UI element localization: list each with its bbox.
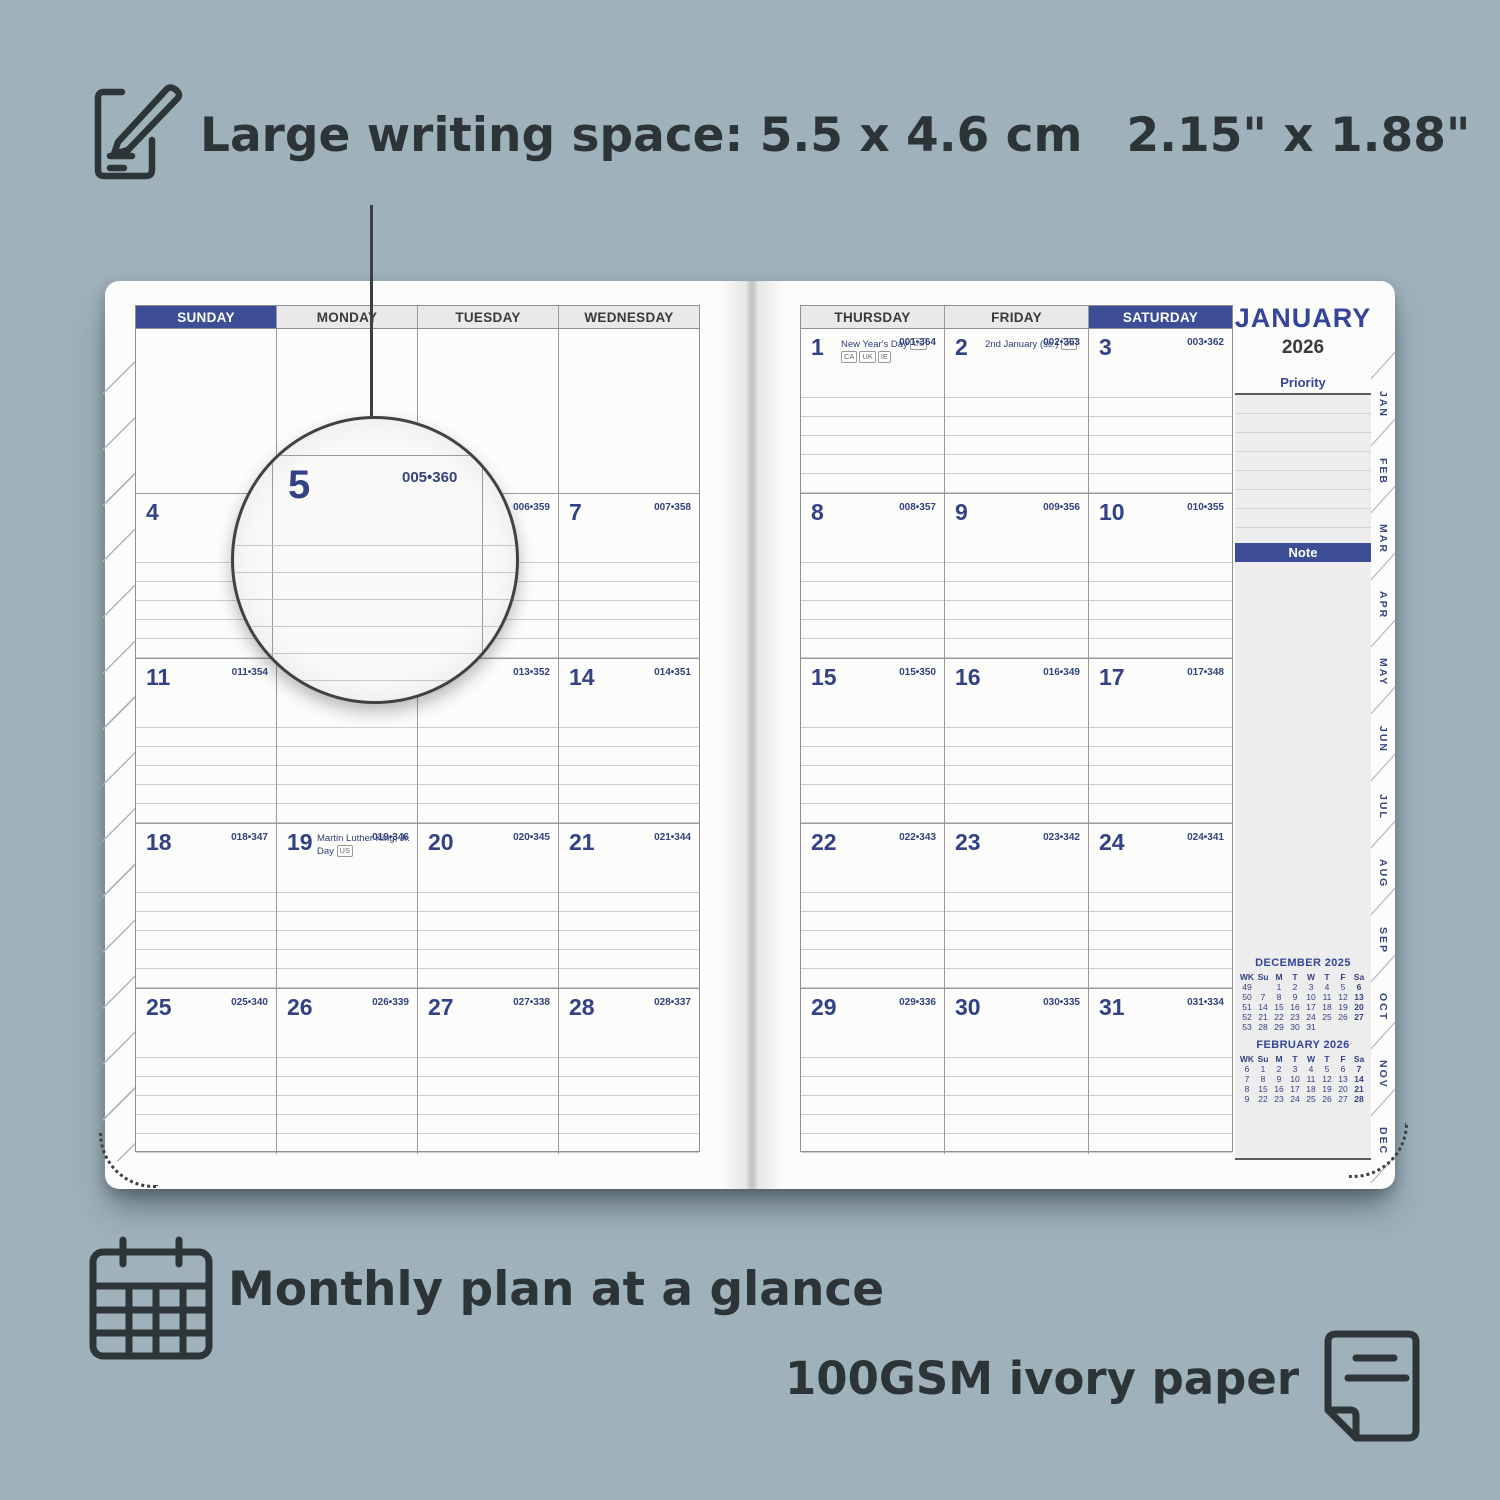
mini-calendar-title: DECEMBER 2025 [1239, 957, 1367, 969]
day-cell: 1New Year's Day USCAUKIE001•364 [801, 329, 945, 493]
mini-calendar-header-cell: WK [1239, 972, 1255, 982]
mini-calendar-cell: 13 [1351, 992, 1367, 1002]
day-code: 003•362 [1187, 337, 1224, 348]
month-tab-label: MAY [1377, 658, 1389, 686]
mini-calendar-cell: 7 [1255, 992, 1271, 1002]
day-number: 24 [1099, 829, 1125, 856]
mini-calendar-header-cell: M [1271, 1054, 1287, 1064]
mini-calendar-cell: 9 [1287, 992, 1303, 1002]
mini-calendar-cell: 17 [1303, 1002, 1319, 1012]
writing-space-metric: Large writing space: 5.5 x 4.6 cm [200, 108, 1082, 163]
mini-calendar-cell: 4 [1303, 1064, 1319, 1074]
mini-calendar-cell: 6 [1239, 1064, 1255, 1074]
mini-calendar-cell: 19 [1319, 1084, 1335, 1094]
mini-calendar-row: 815161718192021 [1239, 1084, 1367, 1094]
day-code: 016•349 [1043, 667, 1080, 678]
mini-calendar-cell: 26 [1319, 1094, 1335, 1104]
page-gutter-shadow [720, 281, 784, 1189]
paper-sheet-icon [1312, 1326, 1428, 1450]
mini-calendar-row: 5078910111213 [1239, 992, 1367, 1002]
calendar-grid-icon [85, 1234, 217, 1364]
dow-header: MONDAY [277, 306, 418, 328]
mini-calendar-cell: 3 [1303, 982, 1319, 992]
month-tab: JUN [1371, 706, 1395, 773]
mini-calendar-cell: 20 [1335, 1084, 1351, 1094]
mini-calendar-header-cell: F [1335, 1054, 1351, 1064]
priority-section-label: Priority [1233, 375, 1373, 390]
mini-calendar-cell: 18 [1319, 1002, 1335, 1012]
mini-calendar-cell [1335, 1022, 1351, 1032]
day-number: 19 [287, 829, 313, 856]
dow-header: WEDNESDAY [559, 306, 699, 328]
week-row: 15015•35016016•34917017•348 [801, 659, 1232, 824]
day-cell: 3003•362 [1089, 329, 1232, 493]
mini-calendar-cell: 7 [1239, 1074, 1255, 1084]
mini-calendar-cell: 2 [1287, 982, 1303, 992]
month-tab-label: JUN [1377, 726, 1389, 753]
day-number: 21 [569, 829, 595, 856]
day-code: 031•334 [1187, 997, 1224, 1008]
day-number: 4 [146, 499, 159, 526]
day-number: 17 [1099, 664, 1125, 691]
mini-calendar-cell: 11 [1303, 1074, 1319, 1084]
day-cell: 7007•358 [559, 494, 699, 658]
day-number: 3 [1099, 334, 1112, 361]
writing-space-callout: Large writing space: 5.5 x 4.6 cm2.15" x… [200, 108, 1470, 163]
note-section-label: Note [1235, 543, 1371, 562]
mini-calendar-cell: 53 [1239, 1022, 1255, 1032]
country-badge: US [337, 845, 353, 857]
day-code: 008•357 [899, 502, 936, 513]
day-number: 2 [955, 334, 968, 361]
day-code: 019•346 [372, 832, 409, 843]
mini-calendar-row: 5328293031 [1239, 1022, 1367, 1032]
day-code: 015•350 [899, 667, 936, 678]
week-row: 1New Year's Day USCAUKIE001•36422nd Janu… [801, 329, 1232, 494]
week-row: 22022•34323023•34224024•341 [801, 824, 1232, 989]
day-code: 010•355 [1187, 502, 1224, 513]
mini-calendar-cell: 8 [1239, 1084, 1255, 1094]
day-cell: 16016•349 [945, 659, 1089, 823]
mini-calendar-cell: 29 [1271, 1022, 1287, 1032]
day-code: 030•335 [1043, 997, 1080, 1008]
mini-calendar-header-cell: F [1335, 972, 1351, 982]
magnifier-circle: 5 005•360 [231, 416, 519, 704]
day-cell [136, 329, 277, 493]
paper-callout: 100GSM ivory paper [785, 1352, 1205, 1405]
month-tab-label: FEB [1377, 458, 1389, 485]
mini-calendar-cell: 12 [1319, 1074, 1335, 1084]
day-cell: 18018•347 [136, 824, 277, 988]
day-code: 026•339 [372, 997, 409, 1008]
mini-calendar-header-cell: M [1271, 972, 1287, 982]
mini-calendar-title: FEBRUARY 2026 [1239, 1039, 1367, 1051]
dow-header: TUESDAY [418, 306, 559, 328]
mini-calendar-cell: 18 [1303, 1084, 1319, 1094]
day-number: 10 [1099, 499, 1125, 526]
day-cell: 20020•345 [418, 824, 559, 988]
month-tab-label: NOV [1377, 1060, 1389, 1089]
mini-calendar-header-cell: T [1319, 972, 1335, 982]
mini-calendar-table: WKSuMTWTFSa61234567789101112131481516171… [1239, 1054, 1367, 1104]
mini-calendar-header-cell: Sa [1351, 1054, 1367, 1064]
mini-calendar-header-cell: WK [1239, 1054, 1255, 1064]
day-cell: 24024•341 [1089, 824, 1232, 988]
day-number: 26 [287, 994, 313, 1021]
day-number: 16 [955, 664, 981, 691]
priority-writing-area [1235, 393, 1371, 545]
day-cell: 30030•335 [945, 989, 1089, 1154]
mini-calendar-cell: 28 [1351, 1094, 1367, 1104]
day-cell: 21021•344 [559, 824, 699, 988]
day-code: 028•337 [654, 997, 691, 1008]
day-number: 7 [569, 499, 582, 526]
mini-calendar-header-row: WKSuMTWTFSa [1239, 1054, 1367, 1064]
right-page-calendar-grid: THURSDAYFRIDAYSATURDAY1New Year's Day US… [800, 305, 1233, 1152]
mini-calendar-row: 7891011121314 [1239, 1074, 1367, 1084]
mini-calendar-header-cell: W [1303, 1054, 1319, 1064]
day-cell: 15015•350 [801, 659, 945, 823]
day-cell: 8008•357 [801, 494, 945, 658]
mini-calendar-cell [1319, 1022, 1335, 1032]
mini-calendar-cell: 19 [1335, 1002, 1351, 1012]
monthly-plan-callout: Monthly plan at a glance [228, 1262, 884, 1317]
day-code: 013•352 [513, 667, 550, 678]
mini-calendar-header-cell: Su [1255, 972, 1271, 982]
day-code: 007•358 [654, 502, 691, 513]
day-cell: 29029•336 [801, 989, 945, 1154]
dow-header: SATURDAY [1089, 306, 1232, 328]
month-tab: NOV [1371, 1041, 1395, 1108]
mini-calendar-header-cell: W [1303, 972, 1319, 982]
mini-calendar: FEBRUARY 2026WKSuMTWTFSa6123456778910111… [1239, 1039, 1367, 1104]
corner-dotted-arc-right [1349, 1123, 1408, 1178]
day-number: 29 [811, 994, 837, 1021]
mini-calendar-cell: 24 [1303, 1012, 1319, 1022]
month-tab: AUG [1371, 840, 1395, 907]
mini-calendar-row: 922232425262728 [1239, 1094, 1367, 1104]
mini-calendar-cell: 15 [1271, 1002, 1287, 1012]
day-number: 23 [955, 829, 981, 856]
mini-calendar-cell: 6 [1335, 1064, 1351, 1074]
week-row: 18018•34719Martin Luther King, Jr. Day U… [136, 824, 699, 989]
day-number: 15 [811, 664, 837, 691]
month-tab: FEB [1371, 438, 1395, 505]
mini-calendar-cell: 26 [1335, 1012, 1351, 1022]
day-cell [559, 329, 699, 493]
day-number: 30 [955, 994, 981, 1021]
writing-space-imperial: 2.15" x 1.88" [1126, 108, 1470, 163]
day-number: 20 [428, 829, 454, 856]
magnified-ruled-lines [234, 519, 516, 701]
mini-calendar-cell: 14 [1351, 1074, 1367, 1084]
day-number: 9 [955, 499, 968, 526]
day-cell: 19Martin Luther King, Jr. Day US019•346 [277, 824, 418, 988]
planner-spread: SUNDAYMONDAYTUESDAYWEDNESDAY4006•3597007… [105, 281, 1395, 1189]
note-writing-area [1235, 562, 1371, 948]
day-code: 020•345 [513, 832, 550, 843]
day-of-week-header-row: SUNDAYMONDAYTUESDAYWEDNESDAY [136, 306, 699, 329]
country-badge: UK [859, 351, 875, 363]
day-cell: 17017•348 [1089, 659, 1232, 823]
day-code: 017•348 [1187, 667, 1224, 678]
mini-calendar-cell: 9 [1271, 1074, 1287, 1084]
day-cell: 27027•338 [418, 989, 559, 1154]
day-cell: 9009•356 [945, 494, 1089, 658]
mini-calendar-cell: 31 [1303, 1022, 1319, 1032]
product-image-canvas: Large writing space: 5.5 x 4.6 cm2.15" x… [0, 0, 1500, 1500]
mini-calendar-header-cell: Sa [1351, 972, 1367, 982]
mini-calendar-cell: 16 [1287, 1002, 1303, 1012]
month-tab-label: OCT [1377, 993, 1389, 1021]
day-code: 009•356 [1043, 502, 1080, 513]
day-number: 25 [146, 994, 172, 1021]
mini-calendar-cell: 10 [1287, 1074, 1303, 1084]
left-page-edge-stripes [103, 339, 135, 1161]
day-code: 029•336 [899, 997, 936, 1008]
mini-calendar-cell: 3 [1287, 1064, 1303, 1074]
mini-calendar-header-cell: T [1319, 1054, 1335, 1064]
mini-calendar-cell: 1 [1255, 1064, 1271, 1074]
month-tab-label: MAR [1377, 524, 1389, 554]
dow-header: SUNDAY [136, 306, 277, 328]
mini-calendar-cell: 4 [1319, 982, 1335, 992]
day-code: 018•347 [231, 832, 268, 843]
day-code: 025•340 [231, 997, 268, 1008]
day-number: 1 [811, 334, 824, 361]
mini-calendar-cell: 15 [1255, 1084, 1271, 1094]
mini-calendar-header-cell: Su [1255, 1054, 1271, 1064]
mini-calendar-cell: 8 [1255, 1074, 1271, 1084]
mini-calendar-row: 5114151617181920 [1239, 1002, 1367, 1012]
mini-calendar-cell: 21 [1351, 1084, 1367, 1094]
magnifier-pointer-line [370, 205, 373, 419]
day-cell: 14014•351 [559, 659, 699, 823]
mini-calendar-cell: 17 [1287, 1084, 1303, 1094]
mini-calendar-row: 49123456 [1239, 982, 1367, 992]
day-cell: 22nd January (sc.) UK002•363 [945, 329, 1089, 493]
month-tab: MAY [1371, 639, 1395, 706]
week-row: 25025•34026026•33927027•33828028•337 [136, 989, 699, 1154]
dow-header: FRIDAY [945, 306, 1089, 328]
mini-calendar-cell: 23 [1271, 1094, 1287, 1104]
month-title: JANUARY [1233, 303, 1373, 334]
mini-calendar-cell: 23 [1287, 1012, 1303, 1022]
day-code: 022•343 [899, 832, 936, 843]
day-number: 27 [428, 994, 454, 1021]
month-tab: SEP [1371, 907, 1395, 974]
mini-calendar-cell: 22 [1271, 1012, 1287, 1022]
month-tab-label: AUG [1377, 859, 1389, 888]
day-code: 021•344 [654, 832, 691, 843]
week-row: 8008•3579009•35610010•355 [801, 494, 1232, 659]
day-code: 006•359 [513, 502, 550, 513]
mini-calendar-cell: 14 [1255, 1002, 1271, 1012]
day-number: 8 [811, 499, 824, 526]
day-number: 22 [811, 829, 837, 856]
mini-calendar-cell: 50 [1239, 992, 1255, 1002]
mini-calendar-row: 5221222324252627 [1239, 1012, 1367, 1022]
magnified-day-code: 005•360 [402, 469, 457, 486]
day-number: 28 [569, 994, 595, 1021]
day-cell: 10010•355 [1089, 494, 1232, 658]
mini-calendar-cell: 25 [1319, 1012, 1335, 1022]
sidebar: JANUARY 2026 Priority Note DECEMBER 2025… [1233, 281, 1373, 1189]
mini-calendar-cell: 11 [1319, 992, 1335, 1002]
mini-calendar-cell [1351, 1022, 1367, 1032]
mini-calendar-header-row: WKSuMTWTFSa [1239, 972, 1367, 982]
dow-header: THURSDAY [801, 306, 945, 328]
country-badge: IE [878, 351, 891, 363]
day-code: 023•342 [1043, 832, 1080, 843]
week-row: 29029•33630030•33531031•334 [801, 989, 1232, 1154]
mini-calendar-header-cell: T [1287, 972, 1303, 982]
magnified-day-number: 5 [288, 463, 310, 508]
day-cell: 28028•337 [559, 989, 699, 1154]
day-code: 002•363 [1043, 337, 1080, 348]
day-cell: 26026•339 [277, 989, 418, 1154]
day-cell: 23023•342 [945, 824, 1089, 988]
country-badge: CA [841, 351, 857, 363]
month-tab-label: SEP [1377, 927, 1389, 954]
mini-calendar-cell: 2 [1271, 1064, 1287, 1074]
mini-calendar-cell: 28 [1255, 1022, 1271, 1032]
magnified-cell-top-border [234, 455, 516, 456]
mini-calendar-cell: 24 [1287, 1094, 1303, 1104]
mini-calendar-cell: 12 [1335, 992, 1351, 1002]
day-number: 18 [146, 829, 172, 856]
mini-calendar-row: 61234567 [1239, 1064, 1367, 1074]
mini-calendar-cell: 30 [1287, 1022, 1303, 1032]
mini-calendar-cell: 49 [1239, 982, 1255, 992]
day-code: 027•338 [513, 997, 550, 1008]
mini-calendar-table: WKSuMTWTFSa49123456507891011121351141516… [1239, 972, 1367, 1032]
mini-calendar-cell: 8 [1271, 992, 1287, 1002]
year-label: 2026 [1233, 337, 1373, 359]
day-code: 024•341 [1187, 832, 1224, 843]
mini-calendar-cell: 27 [1351, 1012, 1367, 1022]
month-tab: JUL [1371, 773, 1395, 840]
mini-calendar-cell: 52 [1239, 1012, 1255, 1022]
month-tab-label: APR [1377, 591, 1389, 619]
mini-calendar-cell: 13 [1335, 1074, 1351, 1084]
corner-dotted-arc-left [99, 1133, 158, 1188]
month-tab-label: JAN [1377, 391, 1389, 418]
mini-calendar-cell: 5 [1319, 1064, 1335, 1074]
mini-calendar-cell: 51 [1239, 1002, 1255, 1012]
mini-calendar-cell: 16 [1271, 1084, 1287, 1094]
day-cell: 25025•340 [136, 989, 277, 1154]
mini-calendar: DECEMBER 2025WKSuMTWTFSa4912345650789101… [1239, 957, 1367, 1032]
mini-calendar-cell: 1 [1271, 982, 1287, 992]
day-cell: 22022•343 [801, 824, 945, 988]
day-code: 001•364 [899, 337, 936, 348]
mini-calendar-cell: 9 [1239, 1094, 1255, 1104]
day-of-week-header-row: THURSDAYFRIDAYSATURDAY [801, 306, 1232, 329]
mini-calendar-cell: 10 [1303, 992, 1319, 1002]
mini-calendar-cell [1255, 982, 1271, 992]
day-code: 014•351 [654, 667, 691, 678]
month-tab: APR [1371, 572, 1395, 639]
pencil-note-icon [88, 78, 188, 186]
mini-calendar-cell: 20 [1351, 1002, 1367, 1012]
month-tab: OCT [1371, 974, 1395, 1041]
mini-calendar-cell: 7 [1351, 1064, 1367, 1074]
mini-calendar-cell: 6 [1351, 982, 1367, 992]
month-tab: JAN [1371, 371, 1395, 438]
day-cell: 31031•334 [1089, 989, 1232, 1154]
month-tab-label: JUL [1377, 794, 1389, 820]
mini-calendar-cell: 21 [1255, 1012, 1271, 1022]
mini-calendar-cell: 22 [1255, 1094, 1271, 1104]
day-number: 14 [569, 664, 595, 691]
day-number: 11 [146, 664, 170, 691]
month-tab: MAR [1371, 505, 1395, 572]
day-number: 31 [1099, 994, 1125, 1021]
mini-calendar-header-cell: T [1287, 1054, 1303, 1064]
mini-calendar-cell: 25 [1303, 1094, 1319, 1104]
mini-calendar-cell: 5 [1335, 982, 1351, 992]
mini-calendar-cell: 27 [1335, 1094, 1351, 1104]
